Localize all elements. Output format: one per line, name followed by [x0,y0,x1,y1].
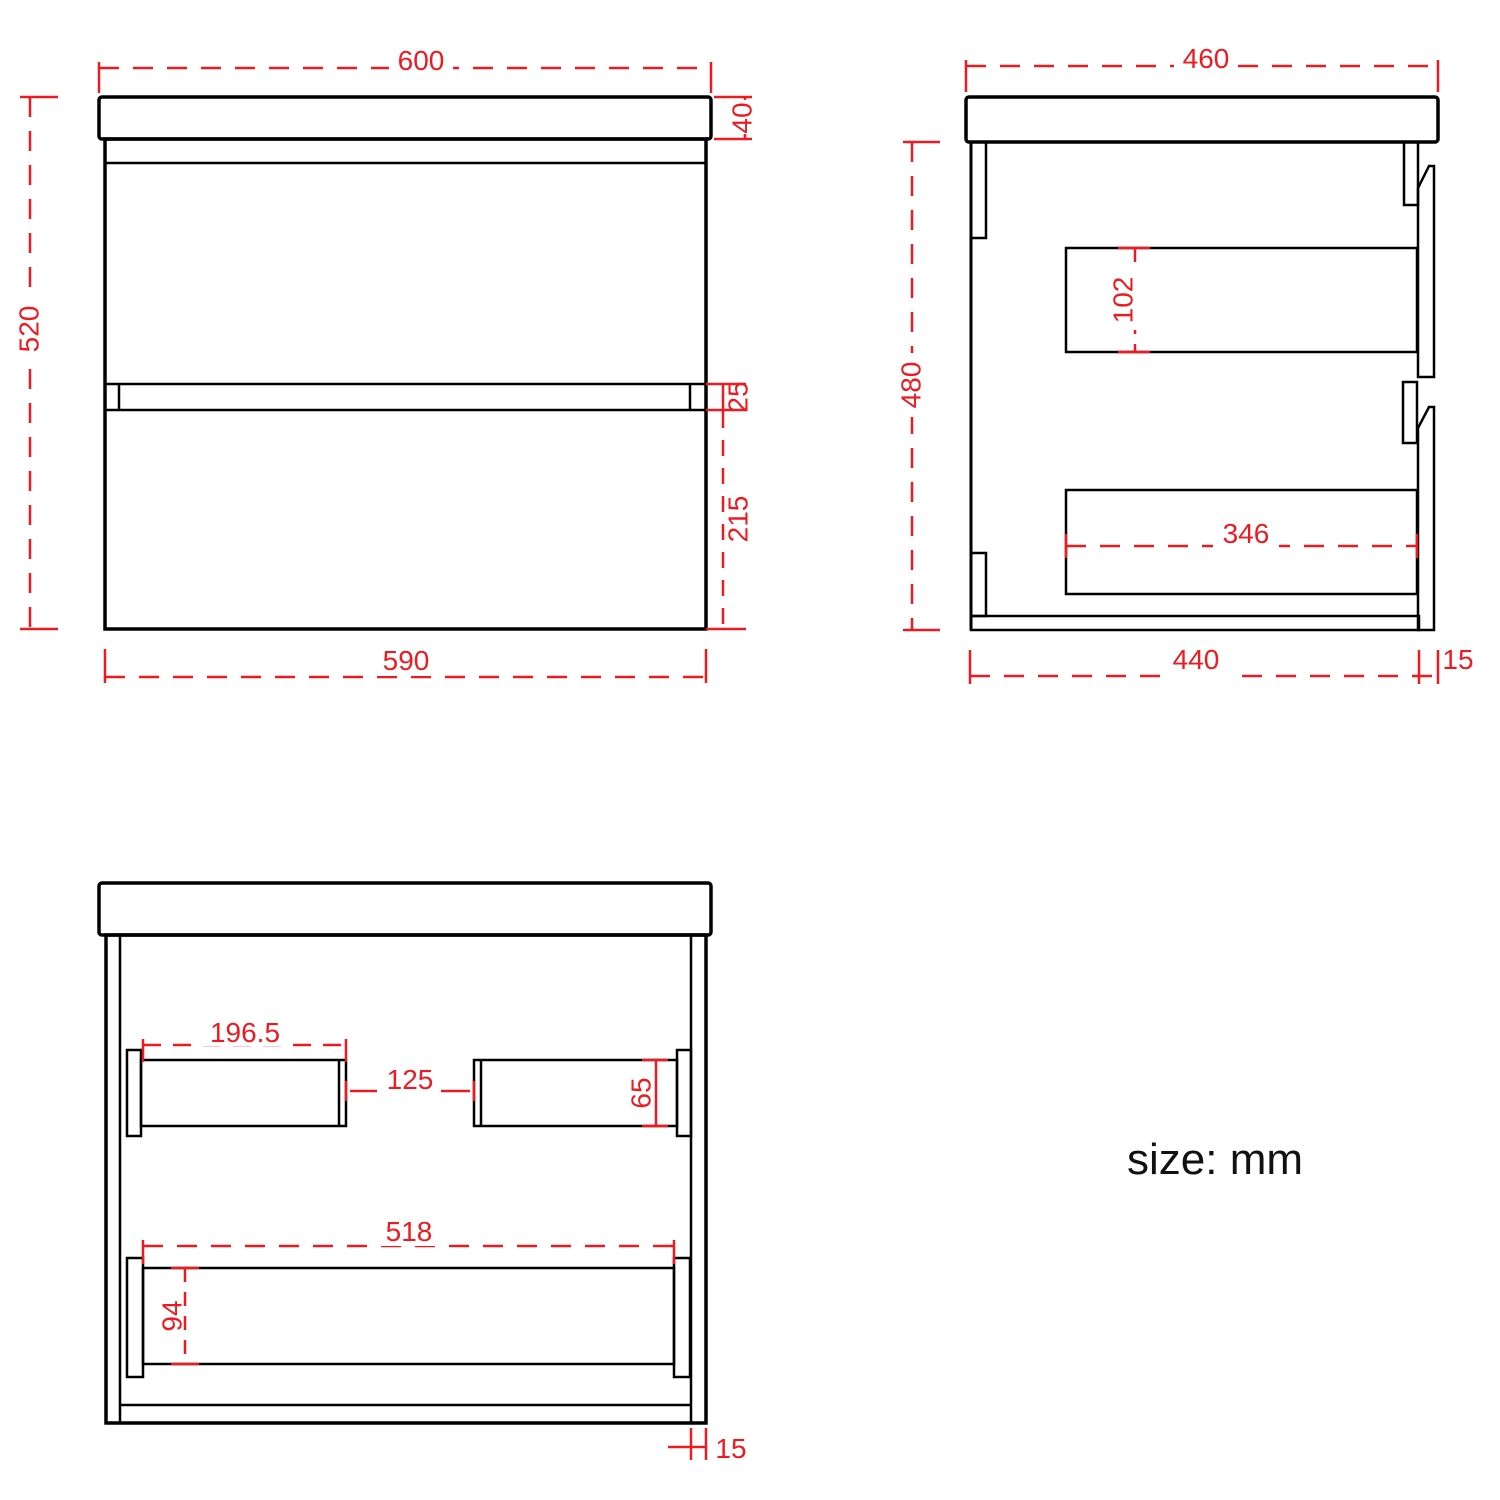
side-countertop [966,97,1438,142]
dim-520-label: 520 [14,306,45,353]
dim-94-label: 94 [157,1300,188,1331]
shelf-right-cap [674,1258,690,1377]
dim-518-label: 518 [386,1216,433,1247]
side-label-backings [899,44,1279,680]
internal-countertop [99,883,711,935]
dim-600-label: 600 [398,45,445,76]
dim-440-label: 440 [1173,644,1220,675]
shelf-bar [143,1268,674,1364]
rail-right-wall-cap [677,1050,691,1136]
side-mid-rail-edge [1403,382,1417,443]
side-bracket-bottom [971,553,986,616]
dim-65-label: 65 [626,1077,657,1108]
dim-102-label: 102 [1108,277,1139,324]
side-bottom-drawer-front [1418,407,1434,630]
side-bracket-top [971,142,986,238]
rail-left-bar [141,1060,346,1126]
dim-215-label: 215 [723,496,754,543]
side-view [966,97,1438,630]
dim-460-label: 460 [1183,43,1230,74]
side-view-dimensions [903,60,1438,684]
rail-left-wall-cap [127,1050,141,1136]
front-view [99,97,711,629]
dim-15b-label: 15 [715,1433,746,1464]
dim-1965-label: 196.5 [210,1017,280,1048]
shelf-left-cap [127,1258,143,1377]
dim-25-label: 25 [723,381,754,412]
internal-view-dimensions [143,1039,706,1460]
internal-body [106,935,706,1423]
side-top-rail-edge [1404,142,1418,205]
side-bottom-panel [971,616,1419,630]
side-top-drawer-front [1418,166,1434,377]
dim-40-label: 40 [727,102,758,133]
side-view-labels: 460 480 102 346 440 15 [896,43,1474,675]
dim-590-label: 590 [383,645,430,676]
vanity-dimension-drawing: 600 40 520 25 215 590 [0,0,1500,1500]
dim-15-side-label: 15 [1442,644,1473,675]
dim-480-label: 480 [896,362,927,409]
front-view-dimensions [20,62,752,683]
internal-view [99,883,711,1423]
units-note: size: mm [1127,1135,1303,1184]
dim-346-label: 346 [1223,518,1270,549]
front-countertop [99,97,711,139]
technical-drawing-page: 600 40 520 25 215 590 [0,0,1500,1500]
internal-view-labels: 196.5 125 65 518 94 15 [157,1017,747,1464]
dim-125-label: 125 [387,1064,434,1095]
internal-label-backings [200,1018,441,1246]
